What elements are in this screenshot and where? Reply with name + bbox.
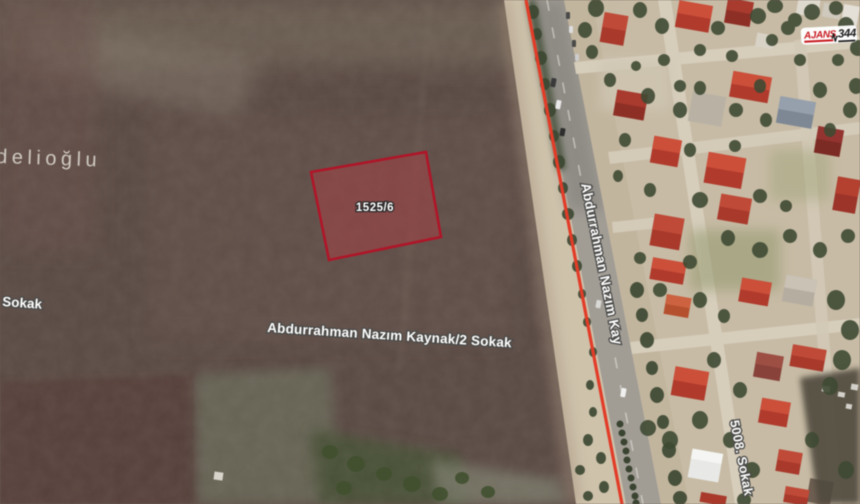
svg-text:Sokak: Sokak <box>2 294 43 312</box>
svg-text:344: 344 <box>838 27 858 40</box>
svg-text:delioğlu: delioğlu <box>0 146 101 172</box>
svg-text:1525/6: 1525/6 <box>356 202 394 214</box>
